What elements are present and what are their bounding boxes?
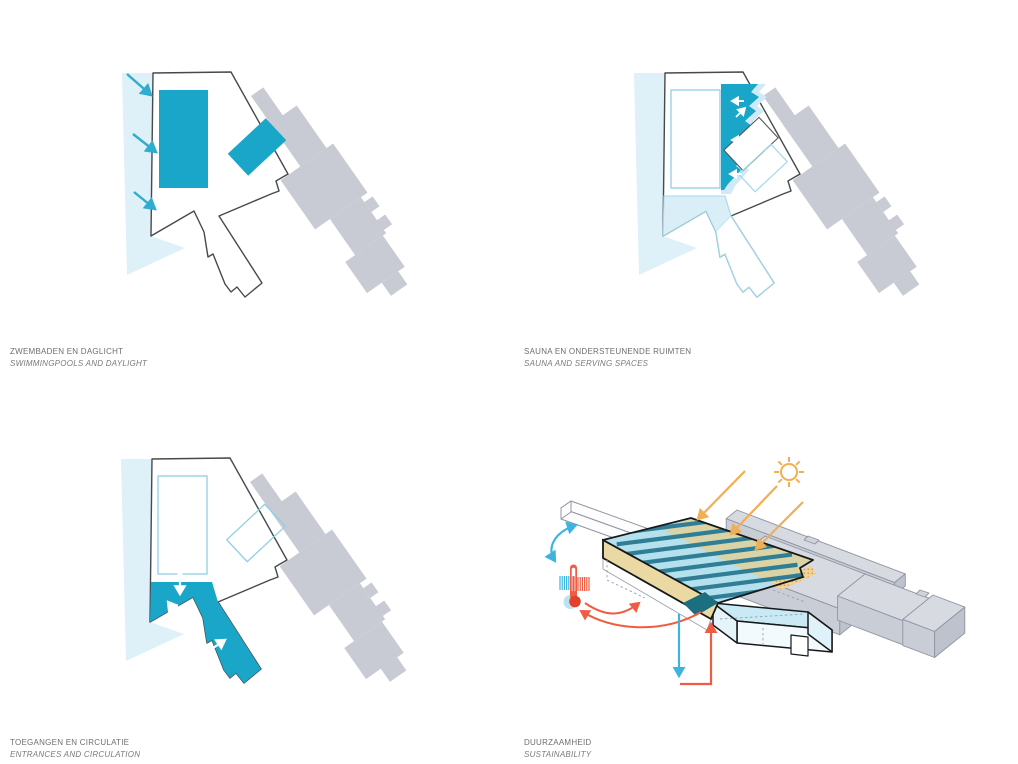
circulation-tail-outline [716,216,774,297]
sun-icon [774,457,804,487]
caption-title-en: SAUNA AND SERVING SPACES [524,358,691,370]
caption-title-nl: ZWEMBADEN EN DAGLICHT [10,346,147,358]
cool-air-arrow [552,525,576,561]
caption-title-nl: TOEGANGEN EN CIRCULATIE [10,737,140,749]
panel-sauna-serving [613,44,923,314]
thermometer-icon [560,568,589,609]
caption-swimmingpools-daylight: ZWEMBADEN EN DAGLICHT SWIMMINGPOOLS AND … [10,346,147,369]
caption-title-en: ENTRANCES AND CIRCULATION [10,749,140,761]
panel-sustainability [515,440,1018,750]
caption-entrances-circulation: TOEGANGEN EN CIRCULATIE ENTRANCES AND CI… [10,737,140,760]
panel-swimmingpools-daylight [101,44,411,314]
caption-title-en: SWIMMINGPOOLS AND DAYLIGHT [10,358,147,370]
caption-sustainability: DUURZAAMHEID SUSTAINABILITY [524,737,591,760]
caption-title-nl: DUURZAAMHEID [524,737,591,749]
caption-title-nl: SAUNA EN ONDERSTEUNENDE RUIMTEN [524,346,691,358]
heat-to-building-arrow [585,603,639,614]
heat-return-arrow [680,624,711,684]
diagram-sheet: ZWEMBADEN EN DAGLICHT SWIMMINGPOOLS AND … [0,0,1018,764]
panel-entrances-circulation [100,430,410,710]
caption-sauna-serving: SAUNA EN ONDERSTEUNENDE RUIMTEN SAUNA AN… [524,346,691,369]
pool-main-fill [159,90,208,188]
caption-title-en: SUSTAINABILITY [524,749,591,761]
